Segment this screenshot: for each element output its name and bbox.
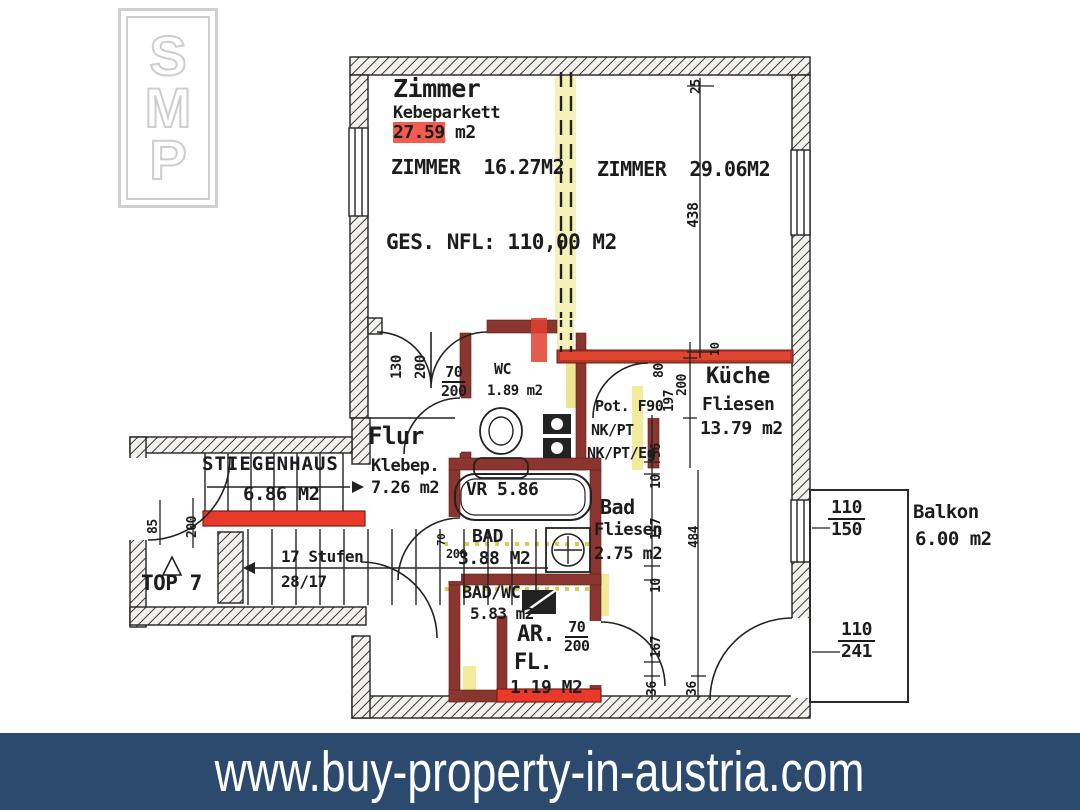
agency-logo-frame: S M P — [126, 16, 210, 200]
room-stiegenhaus-name: STIEGENHAUS — [202, 455, 339, 474]
window-right-top — [791, 150, 810, 235]
room-ar-area: 1.19 M2 — [510, 679, 582, 697]
logo-letter-p: P — [149, 134, 186, 186]
note-pot-f90: Pot. F90 — [595, 399, 663, 414]
room-wc-name: WC — [494, 362, 511, 377]
dim-c56: 56 — [650, 443, 663, 458]
balcony-door-arc — [710, 618, 792, 700]
dim-25: 25 — [690, 79, 703, 94]
dim-s200: 200 — [186, 516, 199, 538]
window-balcony — [791, 500, 810, 562]
room-zimmer-floor: Kebeparkett — [393, 105, 500, 122]
room-zimmer3-label: ZIMMER 29.06M2 — [597, 159, 770, 179]
floorplan-image: Zimmer Kebeparkett 27.59 m2 ZIMMER 16.27… — [0, 0, 1080, 810]
dim-balcony-door: 110241 — [838, 620, 875, 662]
dim-bd70: 70 — [436, 534, 447, 546]
room-balkon-area: 6.00 m2 — [915, 530, 992, 549]
logo-letter-m: M — [145, 82, 192, 134]
room-bad2-name: BAD — [472, 528, 503, 546]
stairs-ratio-label: 28/17 — [281, 574, 327, 590]
room-kueche-area: 13.79 m2 — [700, 420, 783, 438]
dim-c484: 484 — [688, 526, 701, 548]
dim-s85: 85 — [147, 519, 160, 534]
dim-c36a: 36 — [646, 681, 659, 696]
dim-c10a: 10 — [650, 474, 663, 489]
dim-balcony-window: 110150 — [828, 498, 865, 540]
room-badwc-area: 5.83 m2 — [470, 606, 534, 622]
note-nk-pt: NK/PT — [591, 423, 634, 438]
room-badwc-name: BAD/WC — [462, 585, 520, 602]
dim-bd200: 200 — [446, 548, 466, 560]
room-ar-line2: FL. — [514, 652, 552, 674]
total-area-label: GES. NFL: 110,00 M2 — [386, 232, 617, 253]
room-balkon-name: Balkon — [913, 503, 979, 522]
dim-door-130: 130 — [390, 355, 404, 379]
room-ar-line1: AR. — [517, 624, 555, 646]
room-flur-name: Flur — [368, 424, 424, 448]
logo-letter-s: S — [149, 30, 186, 82]
dim-438: 438 — [686, 202, 701, 228]
dim-wc-door: 70200 — [441, 364, 467, 399]
dim-k200: 200 — [676, 374, 689, 396]
room-wc-area: 1.89 m2 — [487, 384, 543, 398]
window-left — [349, 128, 368, 216]
room-bad2-area: 3.88 M2 — [458, 550, 530, 568]
room-vr-label: VR 5.86 — [466, 481, 538, 499]
washbasin — [546, 528, 590, 572]
room-flur-area: 7.26 m2 — [371, 480, 439, 497]
note-nk-pt-eg: NK/PT/Eg — [587, 446, 655, 461]
dim-ar-door: 70200 — [564, 619, 590, 654]
room-stiegenhaus-area: 6.86 M2 — [243, 485, 320, 504]
dim-c167: 167 — [650, 636, 663, 658]
room-kueche-floor: Fliesen — [702, 396, 774, 414]
stairs-steps-label: 17 Stufen — [281, 549, 363, 565]
website-url: www.buy-property-in-austria.com — [215, 739, 865, 805]
room-bad-area: 2.75 m2 — [594, 546, 662, 563]
dim-k10: 10 — [709, 343, 721, 356]
room-zimmer2-label: ZIMMER 16.27M2 — [391, 157, 564, 177]
website-banner: www.buy-property-in-austria.com — [0, 733, 1080, 810]
dim-k80: 80 — [653, 363, 666, 378]
top7-label: TOP 7 — [141, 573, 202, 594]
dim-door-200: 200 — [414, 355, 428, 379]
dim-c10b: 10 — [650, 578, 663, 593]
room-flur-floor: Klebep. — [371, 458, 439, 475]
dim-c36b: 36 — [686, 681, 699, 696]
room-zimmer-name: Zimmer — [393, 76, 480, 102]
room-kueche-name: Küche — [706, 366, 770, 388]
dim-c157: 157 — [650, 518, 663, 540]
room-zimmer-area: 27.59 m2 — [393, 124, 476, 142]
agency-logo: S M P — [118, 8, 218, 208]
room-bad-name: Bad — [600, 497, 635, 517]
